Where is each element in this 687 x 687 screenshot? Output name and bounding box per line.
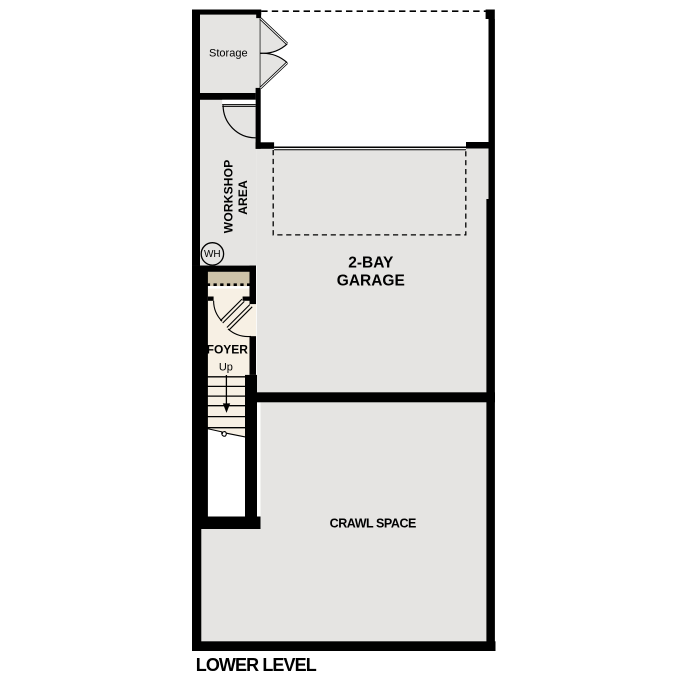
svg-text:CRAWL SPACE: CRAWL SPACE <box>330 516 416 530</box>
svg-text:WH: WH <box>204 249 221 260</box>
svg-text:GARAGE: GARAGE <box>337 273 405 290</box>
svg-text:LOWER LEVEL: LOWER LEVEL <box>196 655 317 675</box>
svg-text:2-BAY: 2-BAY <box>348 254 394 271</box>
svg-text:WORKSHOP: WORKSHOP <box>221 160 235 234</box>
svg-text:AREA: AREA <box>236 180 250 215</box>
svg-text:Up: Up <box>219 361 233 373</box>
svg-text:FOYER: FOYER <box>207 343 249 357</box>
svg-text:Storage: Storage <box>209 48 248 60</box>
